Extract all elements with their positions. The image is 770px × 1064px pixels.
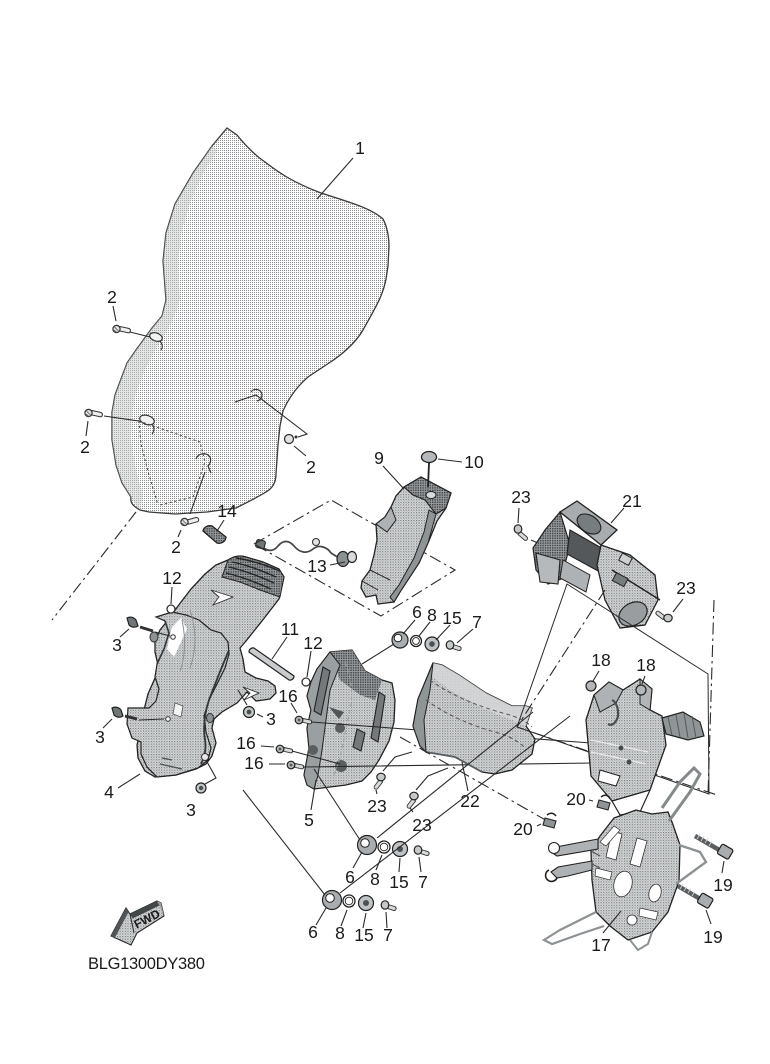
svg-text:12: 12	[162, 568, 181, 588]
svg-text:18: 18	[591, 650, 610, 670]
svg-text:2: 2	[171, 537, 181, 557]
svg-text:15: 15	[389, 872, 408, 892]
svg-text:3: 3	[266, 709, 276, 729]
svg-text:18: 18	[636, 655, 655, 675]
svg-text:15: 15	[354, 925, 373, 945]
svg-text:20: 20	[513, 819, 533, 839]
svg-text:2: 2	[80, 437, 90, 457]
svg-text:2: 2	[306, 457, 316, 477]
svg-text:12: 12	[303, 633, 322, 653]
svg-text:19: 19	[713, 875, 732, 895]
svg-text:6: 6	[345, 867, 355, 887]
svg-text:16: 16	[244, 753, 263, 773]
svg-text:16: 16	[236, 733, 255, 753]
svg-text:11: 11	[281, 619, 299, 639]
svg-text:5: 5	[304, 810, 314, 830]
svg-text:6: 6	[412, 602, 422, 622]
svg-text:8: 8	[335, 923, 345, 943]
svg-text:1: 1	[355, 138, 365, 158]
svg-text:19: 19	[703, 927, 722, 947]
svg-text:7: 7	[472, 612, 482, 632]
svg-text:2: 2	[107, 287, 117, 307]
svg-text:23: 23	[511, 487, 530, 507]
svg-text:22: 22	[460, 791, 479, 811]
svg-text:8: 8	[427, 605, 437, 625]
svg-text:6: 6	[308, 922, 318, 942]
svg-text:15: 15	[442, 608, 461, 628]
svg-text:21: 21	[622, 491, 641, 511]
svg-text:3: 3	[112, 635, 122, 655]
svg-text:8: 8	[370, 869, 380, 889]
svg-text:9: 9	[374, 448, 384, 468]
svg-text:3: 3	[95, 727, 105, 747]
svg-text:23: 23	[676, 578, 695, 598]
svg-text:23: 23	[367, 796, 386, 816]
svg-text:3: 3	[186, 800, 196, 820]
svg-text:10: 10	[464, 452, 484, 472]
svg-text:4: 4	[104, 782, 114, 802]
svg-text:14: 14	[217, 501, 237, 521]
svg-text:7: 7	[418, 872, 428, 892]
svg-text:7: 7	[383, 925, 393, 945]
svg-text:13: 13	[307, 556, 326, 576]
svg-text:17: 17	[591, 935, 610, 955]
svg-text:16: 16	[278, 686, 297, 706]
svg-text:BLG1300DY380: BLG1300DY380	[88, 955, 205, 973]
svg-text:20: 20	[566, 789, 586, 809]
